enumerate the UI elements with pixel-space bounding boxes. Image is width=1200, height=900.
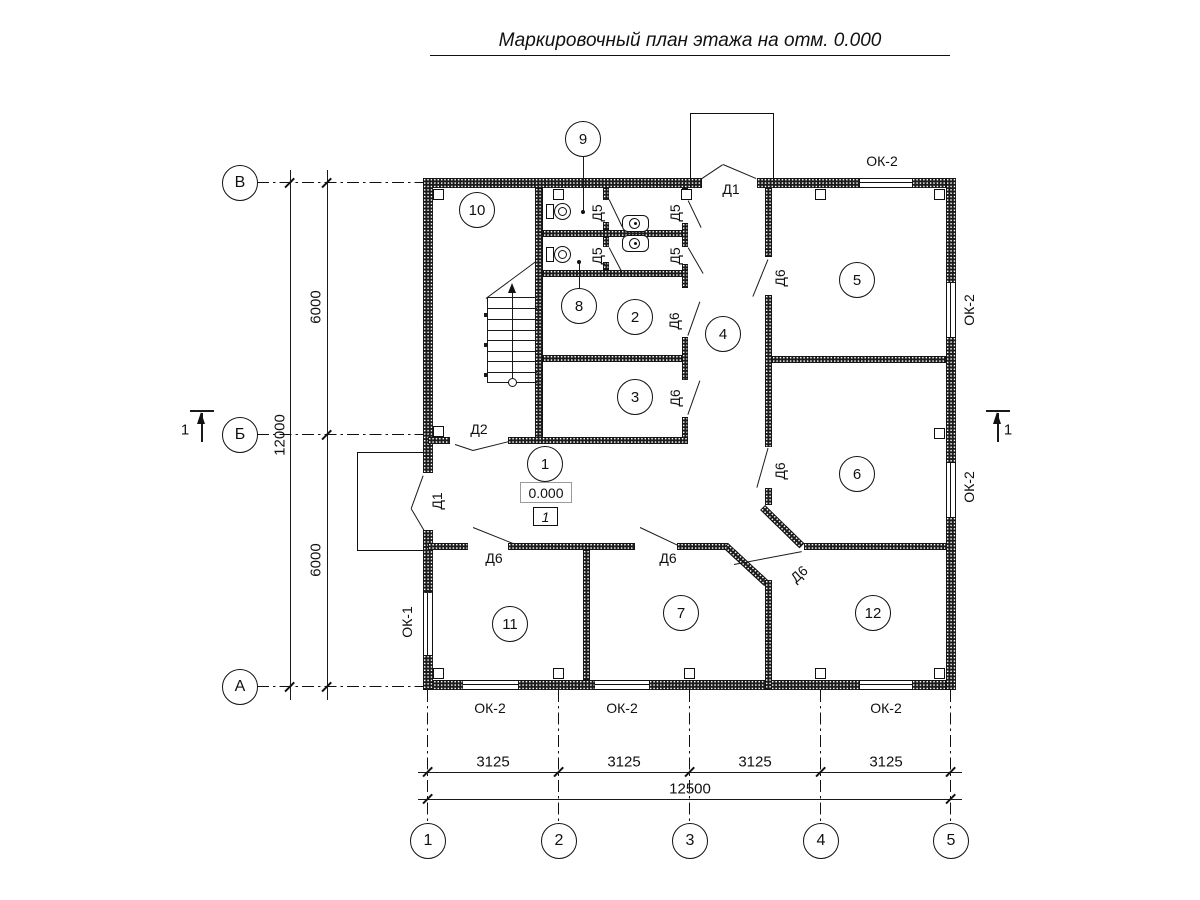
door-label-d6: Д6 [667, 389, 683, 406]
sink-drain [634, 242, 637, 245]
axis-line-2 [558, 690, 559, 823]
wall-bottom [649, 680, 860, 690]
wall-room11-7 [583, 550, 590, 680]
wall-axis-b [428, 437, 450, 444]
wall-niche [433, 189, 444, 200]
room9-leader [583, 156, 584, 212]
room-number: 1 [541, 456, 549, 473]
room-label-11: 11 [492, 606, 528, 642]
wall-niche [433, 668, 444, 679]
wall-niche [553, 189, 564, 200]
door-label-d6: Д6 [772, 269, 788, 286]
elevation-value: 0.000 [528, 485, 563, 501]
floor-plan-drawing: Маркировочный план этажа на отм. 0.000 [0, 0, 1200, 900]
wall-room5-corr [765, 188, 772, 257]
wall-corridor [682, 270, 688, 288]
axis-number: 5 [947, 832, 956, 850]
wall-corridor-south [508, 543, 635, 550]
room-label-6: 6 [839, 456, 875, 492]
wall-wc-stall [603, 237, 609, 247]
axis-letter: Б [235, 426, 246, 444]
toilet-tank [546, 247, 554, 262]
axis-line-a [257, 686, 423, 687]
room-number: 3 [631, 389, 639, 406]
wall-left [423, 530, 433, 593]
dim-line-left-total [290, 170, 291, 700]
section-mark-arrow [197, 412, 205, 424]
door-label-d6: Д6 [787, 562, 811, 585]
axis-bubble-v: В [222, 165, 258, 201]
wall-room6-corr [765, 488, 772, 505]
wall-niche [934, 428, 945, 439]
window-ok2-bottom-1 [463, 680, 518, 690]
stair-stringer [487, 297, 488, 383]
door-label-d6: Д6 [659, 550, 676, 566]
door-leaf-d2 [455, 444, 473, 451]
window-label-ok2: ОК-2 [870, 700, 902, 716]
door-leaf-d6 [687, 301, 700, 335]
dim-3125-2: 3125 [607, 754, 640, 771]
section-mark-label: 1 [181, 422, 189, 439]
wall-niche [815, 189, 826, 200]
wall-corridor-south [677, 543, 728, 550]
room-number: 9 [579, 131, 587, 148]
window-label-ok2: ОК-2 [606, 700, 638, 716]
door-leaf-d6 [473, 527, 513, 544]
wall-room5-corr [765, 295, 772, 447]
room8-leader-dot [577, 260, 581, 264]
floor-type-mark: 1 [533, 507, 558, 526]
wall-left [423, 178, 433, 473]
room-label-12: 12 [855, 595, 891, 631]
room-number: 6 [853, 466, 861, 483]
room-number: 7 [677, 605, 685, 622]
room-number: 12 [865, 605, 882, 622]
wall-diagonal-lower [723, 543, 769, 586]
wall-niche [815, 668, 826, 679]
window-ok2-top [860, 178, 912, 188]
axis-number: 4 [817, 832, 826, 850]
wall-niche [684, 668, 695, 679]
window-ok1-left [423, 593, 433, 655]
stair-break-line [486, 261, 537, 299]
dim-line-bottom-total [418, 799, 962, 800]
door-label-d1: Д1 [722, 181, 739, 197]
axis-line-5 [950, 690, 951, 823]
wall-diagonal-upper [760, 505, 804, 548]
door-label-d6: Д6 [772, 462, 788, 479]
axis-line-1 [427, 690, 428, 823]
wall-wc-stall [603, 188, 609, 200]
axis-bubble-3: 3 [672, 823, 708, 859]
door-leaf-d5 [608, 247, 622, 272]
wall-axis-b [508, 437, 688, 444]
room9-leader-dot [581, 210, 585, 214]
toilet-bowl-inner [558, 250, 567, 259]
toilet-tank [546, 204, 554, 219]
door-leaf-d6 [756, 448, 768, 488]
window-ok2-bottom-2 [595, 680, 649, 690]
wall-stair [535, 188, 543, 443]
stair-post [484, 343, 488, 347]
floor-type-value: 1 [542, 509, 550, 525]
window-label-ok2: ОК-2 [474, 700, 506, 716]
door-label-d2: Д2 [470, 421, 487, 437]
section-mark-label: 1 [1004, 422, 1012, 439]
stair-post [484, 313, 488, 317]
wall-right [946, 337, 956, 463]
door-label-d5: Д5 [667, 247, 683, 264]
wall-bottom [518, 680, 595, 690]
wall-niche [553, 668, 564, 679]
porch-top [690, 113, 774, 180]
room-number: 8 [575, 298, 583, 315]
dim-12000: 12000 [272, 414, 289, 456]
wall-room6-south [804, 543, 946, 550]
axis-bubble-2: 2 [541, 823, 577, 859]
dim-6000-lower: 6000 [308, 543, 325, 576]
axis-number: 1 [424, 832, 433, 850]
sink-drain [634, 222, 637, 225]
room-number: 4 [719, 326, 727, 343]
window-label-ok2: ОК-2 [961, 471, 977, 503]
door-leaf-d5 [687, 200, 701, 228]
wall-left [423, 655, 433, 690]
door-leaf-d6 [640, 527, 679, 546]
window-label-ok2: ОК-2 [961, 294, 977, 326]
door-label-d6: Д6 [666, 312, 682, 329]
stair-post [484, 373, 488, 377]
stair-direction-line [512, 290, 513, 382]
dim-3125-4: 3125 [869, 754, 902, 771]
wall-room2-3 [543, 355, 682, 362]
room-label-1: 1 [527, 446, 563, 482]
wall-wc-mid [543, 230, 688, 237]
room8-leader [579, 262, 580, 289]
wall-right [946, 517, 956, 690]
window-ok2-right-1 [946, 283, 956, 337]
axis-number: 3 [686, 832, 695, 850]
door-leaf-d5 [687, 247, 703, 274]
door-label-d6: Д6 [485, 550, 502, 566]
axis-line-3 [689, 690, 690, 823]
wall-room7-12 [765, 580, 772, 690]
door-label-d5: Д5 [589, 204, 605, 221]
door-leaf-d5 [608, 199, 622, 227]
room-label-4: 4 [705, 316, 741, 352]
wall-corridor-south [428, 543, 468, 550]
elevation-mark: 0.000 [520, 482, 572, 503]
room-label-8: 8 [561, 288, 597, 324]
window-label-ok2: ОК-2 [866, 153, 898, 169]
window-ok2-bottom-3 [860, 680, 912, 690]
door-label-d1: Д1 [429, 492, 445, 509]
wall-wc-stall [603, 222, 609, 230]
room-label-5: 5 [839, 262, 875, 298]
window-ok2-right-2 [946, 463, 956, 517]
axis-number: 2 [555, 832, 564, 850]
stair-direction-arrow [508, 283, 516, 293]
axis-bubble-1: 1 [410, 823, 446, 859]
window-label-ok1: ОК-1 [399, 606, 415, 638]
dim-12500: 12500 [669, 781, 711, 798]
door-leaf-d6 [752, 259, 768, 297]
axis-bubble-4: 4 [803, 823, 839, 859]
wall-right [946, 178, 956, 283]
drawing-title: Маркировочный план этажа на отм. 0.000 [430, 30, 950, 56]
dim-3125-3: 3125 [738, 754, 771, 771]
room-number: 10 [469, 202, 486, 219]
door-label-d5: Д5 [589, 247, 605, 264]
room-number: 11 [502, 616, 518, 633]
wall-niche [681, 189, 692, 200]
room-label-10: 10 [459, 192, 495, 228]
wall-niche [433, 426, 444, 437]
room-label-2: 2 [617, 299, 653, 335]
axis-line-4 [820, 690, 821, 823]
room-number: 5 [853, 272, 861, 289]
axis-letter: В [235, 174, 246, 192]
wall-wc-right [682, 223, 688, 247]
wall-niche [934, 668, 945, 679]
axis-line-v [257, 182, 423, 183]
door-leaf-d2 [473, 441, 509, 451]
stair-direction-start [508, 378, 517, 387]
wall-top [912, 178, 946, 188]
section-mark-arrow [993, 412, 1001, 424]
room-label-9: 9 [565, 121, 601, 157]
wall-top [423, 178, 702, 188]
wall-corridor [682, 337, 688, 380]
wall-wc-bottom [543, 270, 688, 277]
door-label-d5: Д5 [667, 204, 683, 221]
axis-bubble-a: А [222, 669, 258, 705]
axis-letter: А [235, 678, 246, 696]
wall-niche [934, 189, 945, 200]
dim-6000-upper: 6000 [308, 290, 325, 323]
axis-bubble-5: 5 [933, 823, 969, 859]
dim-3125-1: 3125 [476, 754, 509, 771]
wall-room5-6 [772, 356, 946, 363]
room-label-3: 3 [617, 379, 653, 415]
axis-bubble-b: Б [222, 417, 258, 453]
room-label-7: 7 [663, 595, 699, 631]
wall-bottom [912, 680, 946, 690]
door-leaf-d6 [687, 380, 700, 414]
toilet-bowl-inner [558, 207, 567, 216]
room-number: 2 [631, 309, 639, 326]
